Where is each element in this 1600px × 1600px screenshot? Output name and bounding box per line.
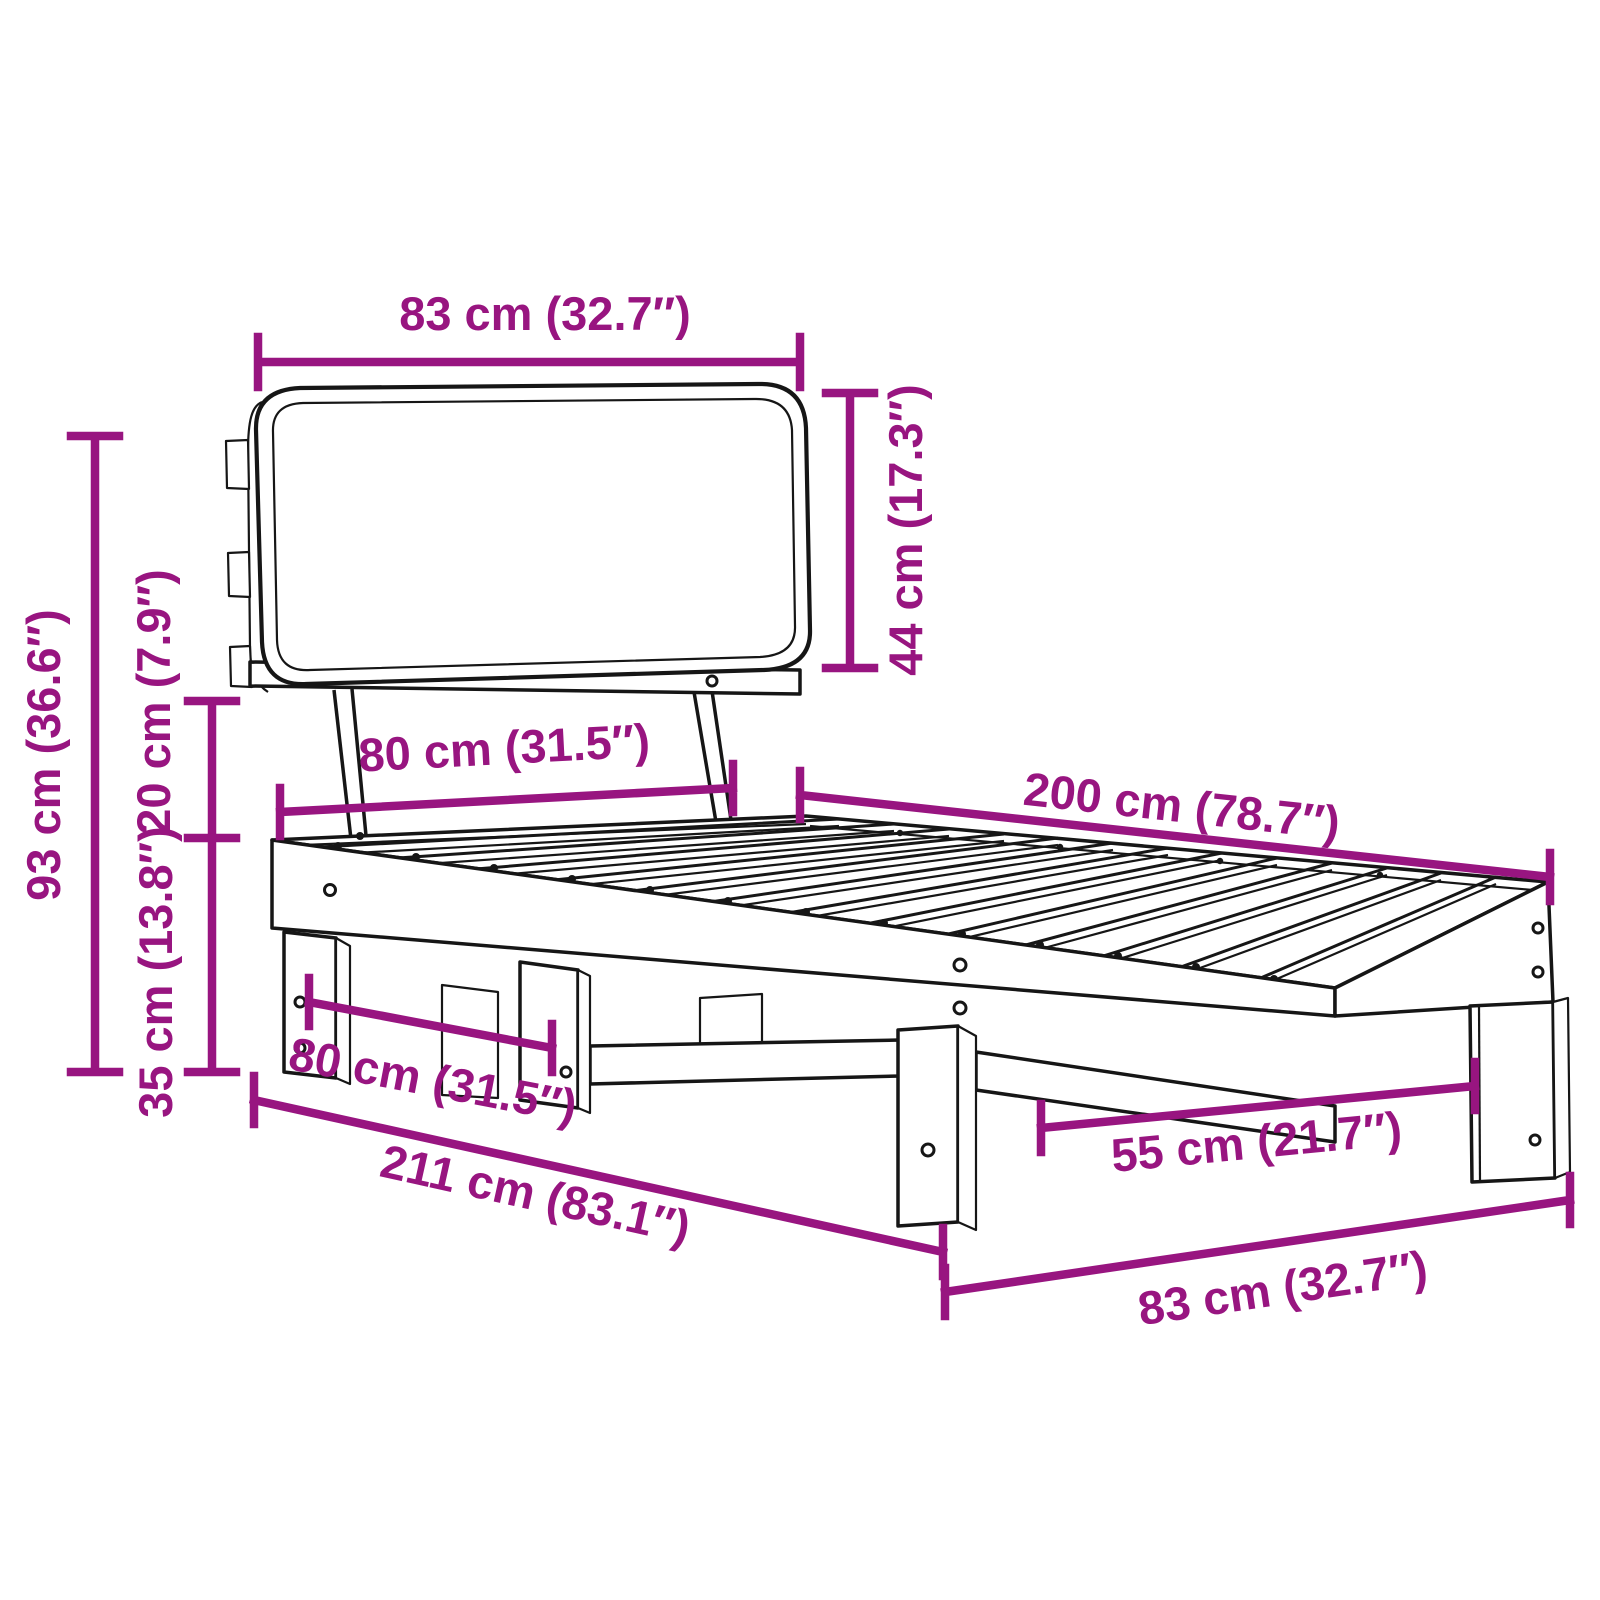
foot-leg <box>1470 1002 1555 1182</box>
dim-foot-width: 83 cm (32.7″) <box>945 1176 1570 1335</box>
dim-line-headboard-gap <box>188 701 236 838</box>
dim-base-height: 35 cm (13.8″) <box>129 826 236 1118</box>
dim-label-headboard-total-height: 93 cm (36.6″) <box>17 609 70 901</box>
dim-label-bed-width: 80 cm (31.5″) <box>357 713 651 781</box>
dim-line-total-length <box>254 1076 943 1276</box>
dim-headboard-gap: 20 cm (7.9″) <box>127 569 236 838</box>
center-leg <box>898 1026 958 1226</box>
dim-label-base-height: 35 cm (13.8″) <box>129 826 182 1118</box>
dim-label-headboard-width: 83 cm (32.7″) <box>399 287 691 340</box>
dim-headboard-height: 44 cm (17.3″) <box>826 384 932 676</box>
dim-line-headboard-width <box>258 337 800 387</box>
dim-headboard-width: 83 cm (32.7″) <box>258 287 800 387</box>
center-leg-side <box>958 1026 976 1230</box>
bed-dimension-drawing: 83 cm (32.7″) 44 cm (17.3″) 93 cm (36.6″… <box>0 0 1600 1600</box>
headboard-tab <box>226 440 249 489</box>
foot-leg-side <box>1553 998 1570 1178</box>
dim-label-headboard-gap: 20 cm (7.9″) <box>127 569 180 834</box>
stretcher-bar <box>590 1040 900 1084</box>
dim-line-headboard-height <box>826 393 874 668</box>
dimension-diagram: 83 cm (32.7″) 44 cm (17.3″) 93 cm (36.6″… <box>0 0 1600 1600</box>
headboard-tab <box>228 552 250 597</box>
center-support-block <box>700 994 762 1048</box>
dim-line-headboard-total-height <box>71 436 119 1072</box>
headboard-cushion <box>256 384 810 684</box>
dim-label-total-length: 211 cm (83.1″) <box>376 1134 695 1254</box>
headboard <box>226 384 810 848</box>
dim-total-length: 211 cm (83.1″) <box>254 1076 943 1276</box>
dim-line-base-height <box>188 838 236 1072</box>
screw-icon <box>954 1002 966 1014</box>
dim-headboard-total-height: 93 cm (36.6″) <box>17 436 119 1072</box>
dim-label-headboard-height: 44 cm (17.3″) <box>879 384 932 676</box>
head-inner-leg-side <box>578 970 590 1113</box>
